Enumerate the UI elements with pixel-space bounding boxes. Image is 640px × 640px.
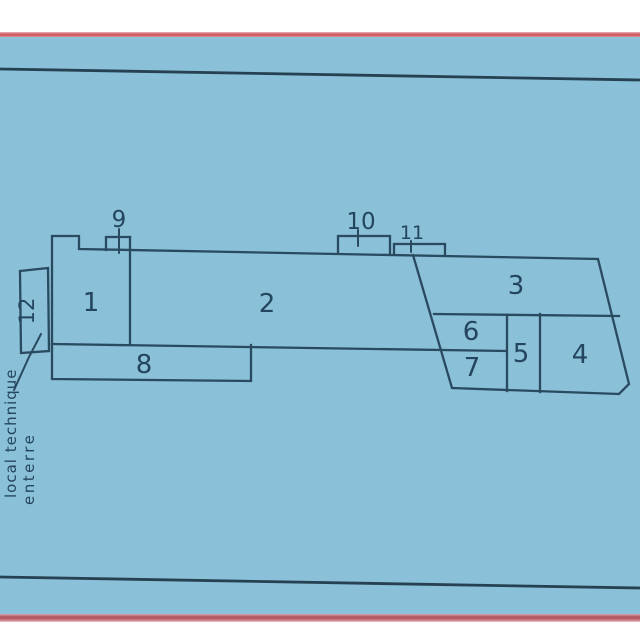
- room-3-label: 3: [508, 271, 525, 301]
- top-red-border-line: [0, 32, 640, 37]
- roof-label-10: 10: [346, 209, 375, 235]
- annotation-local-technique: local technique: [2, 368, 20, 498]
- room-1-label: 1: [83, 288, 100, 318]
- room-8-label: 8: [136, 350, 153, 380]
- room-12-label: 12: [15, 298, 39, 325]
- annotation-enterre: enterre: [20, 433, 38, 505]
- room-5-label: 5: [513, 339, 530, 369]
- floor-plan-svg: 1 2 3 4 5 6 7 8 9 10 11 12 local techniq…: [0, 0, 640, 640]
- room-1-2-bottom-line: [52, 344, 506, 351]
- roof-box-11: [394, 244, 445, 254]
- site-boundary-bottom-line: [0, 577, 640, 588]
- roof-label-11: 11: [400, 222, 424, 244]
- page-background: 1 2 3 4 5 6 7 8 9 10 11 12 local techniq…: [0, 0, 640, 640]
- site-boundary-top-line: [0, 69, 640, 80]
- room-2-label: 2: [259, 289, 276, 319]
- room-4-label: 4: [572, 340, 589, 370]
- room-6-label: 6: [463, 317, 480, 347]
- roof-box-10: [338, 236, 390, 253]
- bottom-red-border-line: [0, 614, 640, 622]
- room-3-bottom-divider: [434, 314, 619, 316]
- room-7-label: 7: [464, 353, 481, 383]
- roof-label-9: 9: [112, 207, 127, 233]
